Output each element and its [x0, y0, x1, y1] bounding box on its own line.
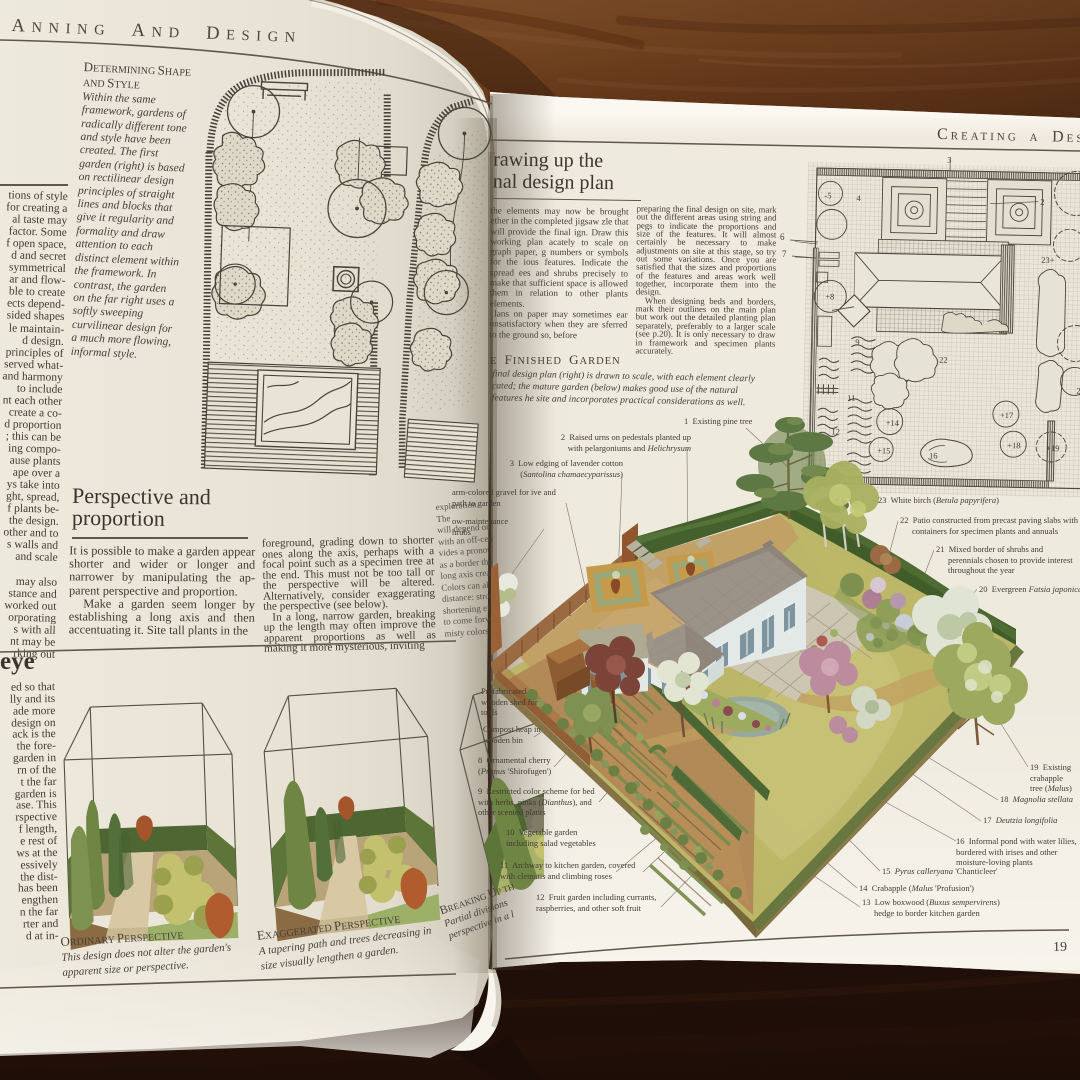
svg-text:-5: -5 [824, 190, 831, 200]
svg-text:21: 21 [1076, 386, 1080, 396]
svg-text:+8: +8 [825, 291, 834, 301]
svg-text:22: 22 [939, 355, 948, 365]
svg-text:2: 2 [1040, 197, 1044, 207]
svg-text:9: 9 [855, 337, 859, 347]
svg-text:23+: 23+ [1041, 255, 1055, 265]
